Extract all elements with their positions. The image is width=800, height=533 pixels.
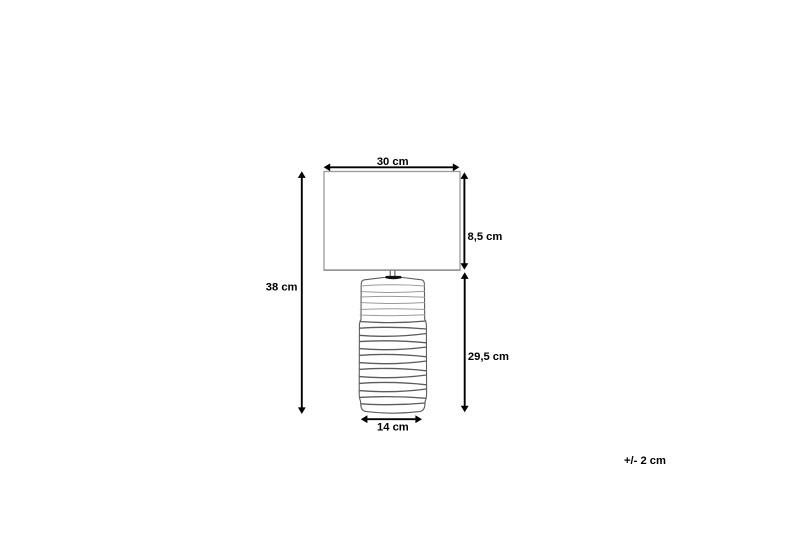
svg-text:14 cm: 14 cm — [377, 421, 409, 433]
svg-text:30 cm: 30 cm — [377, 156, 409, 168]
svg-text:29,5 cm: 29,5 cm — [468, 351, 509, 363]
svg-text:38 cm: 38 cm — [266, 282, 298, 294]
svg-text:8,5 cm: 8,5 cm — [468, 231, 503, 243]
svg-text:+/- 2 cm: +/- 2 cm — [624, 455, 666, 467]
